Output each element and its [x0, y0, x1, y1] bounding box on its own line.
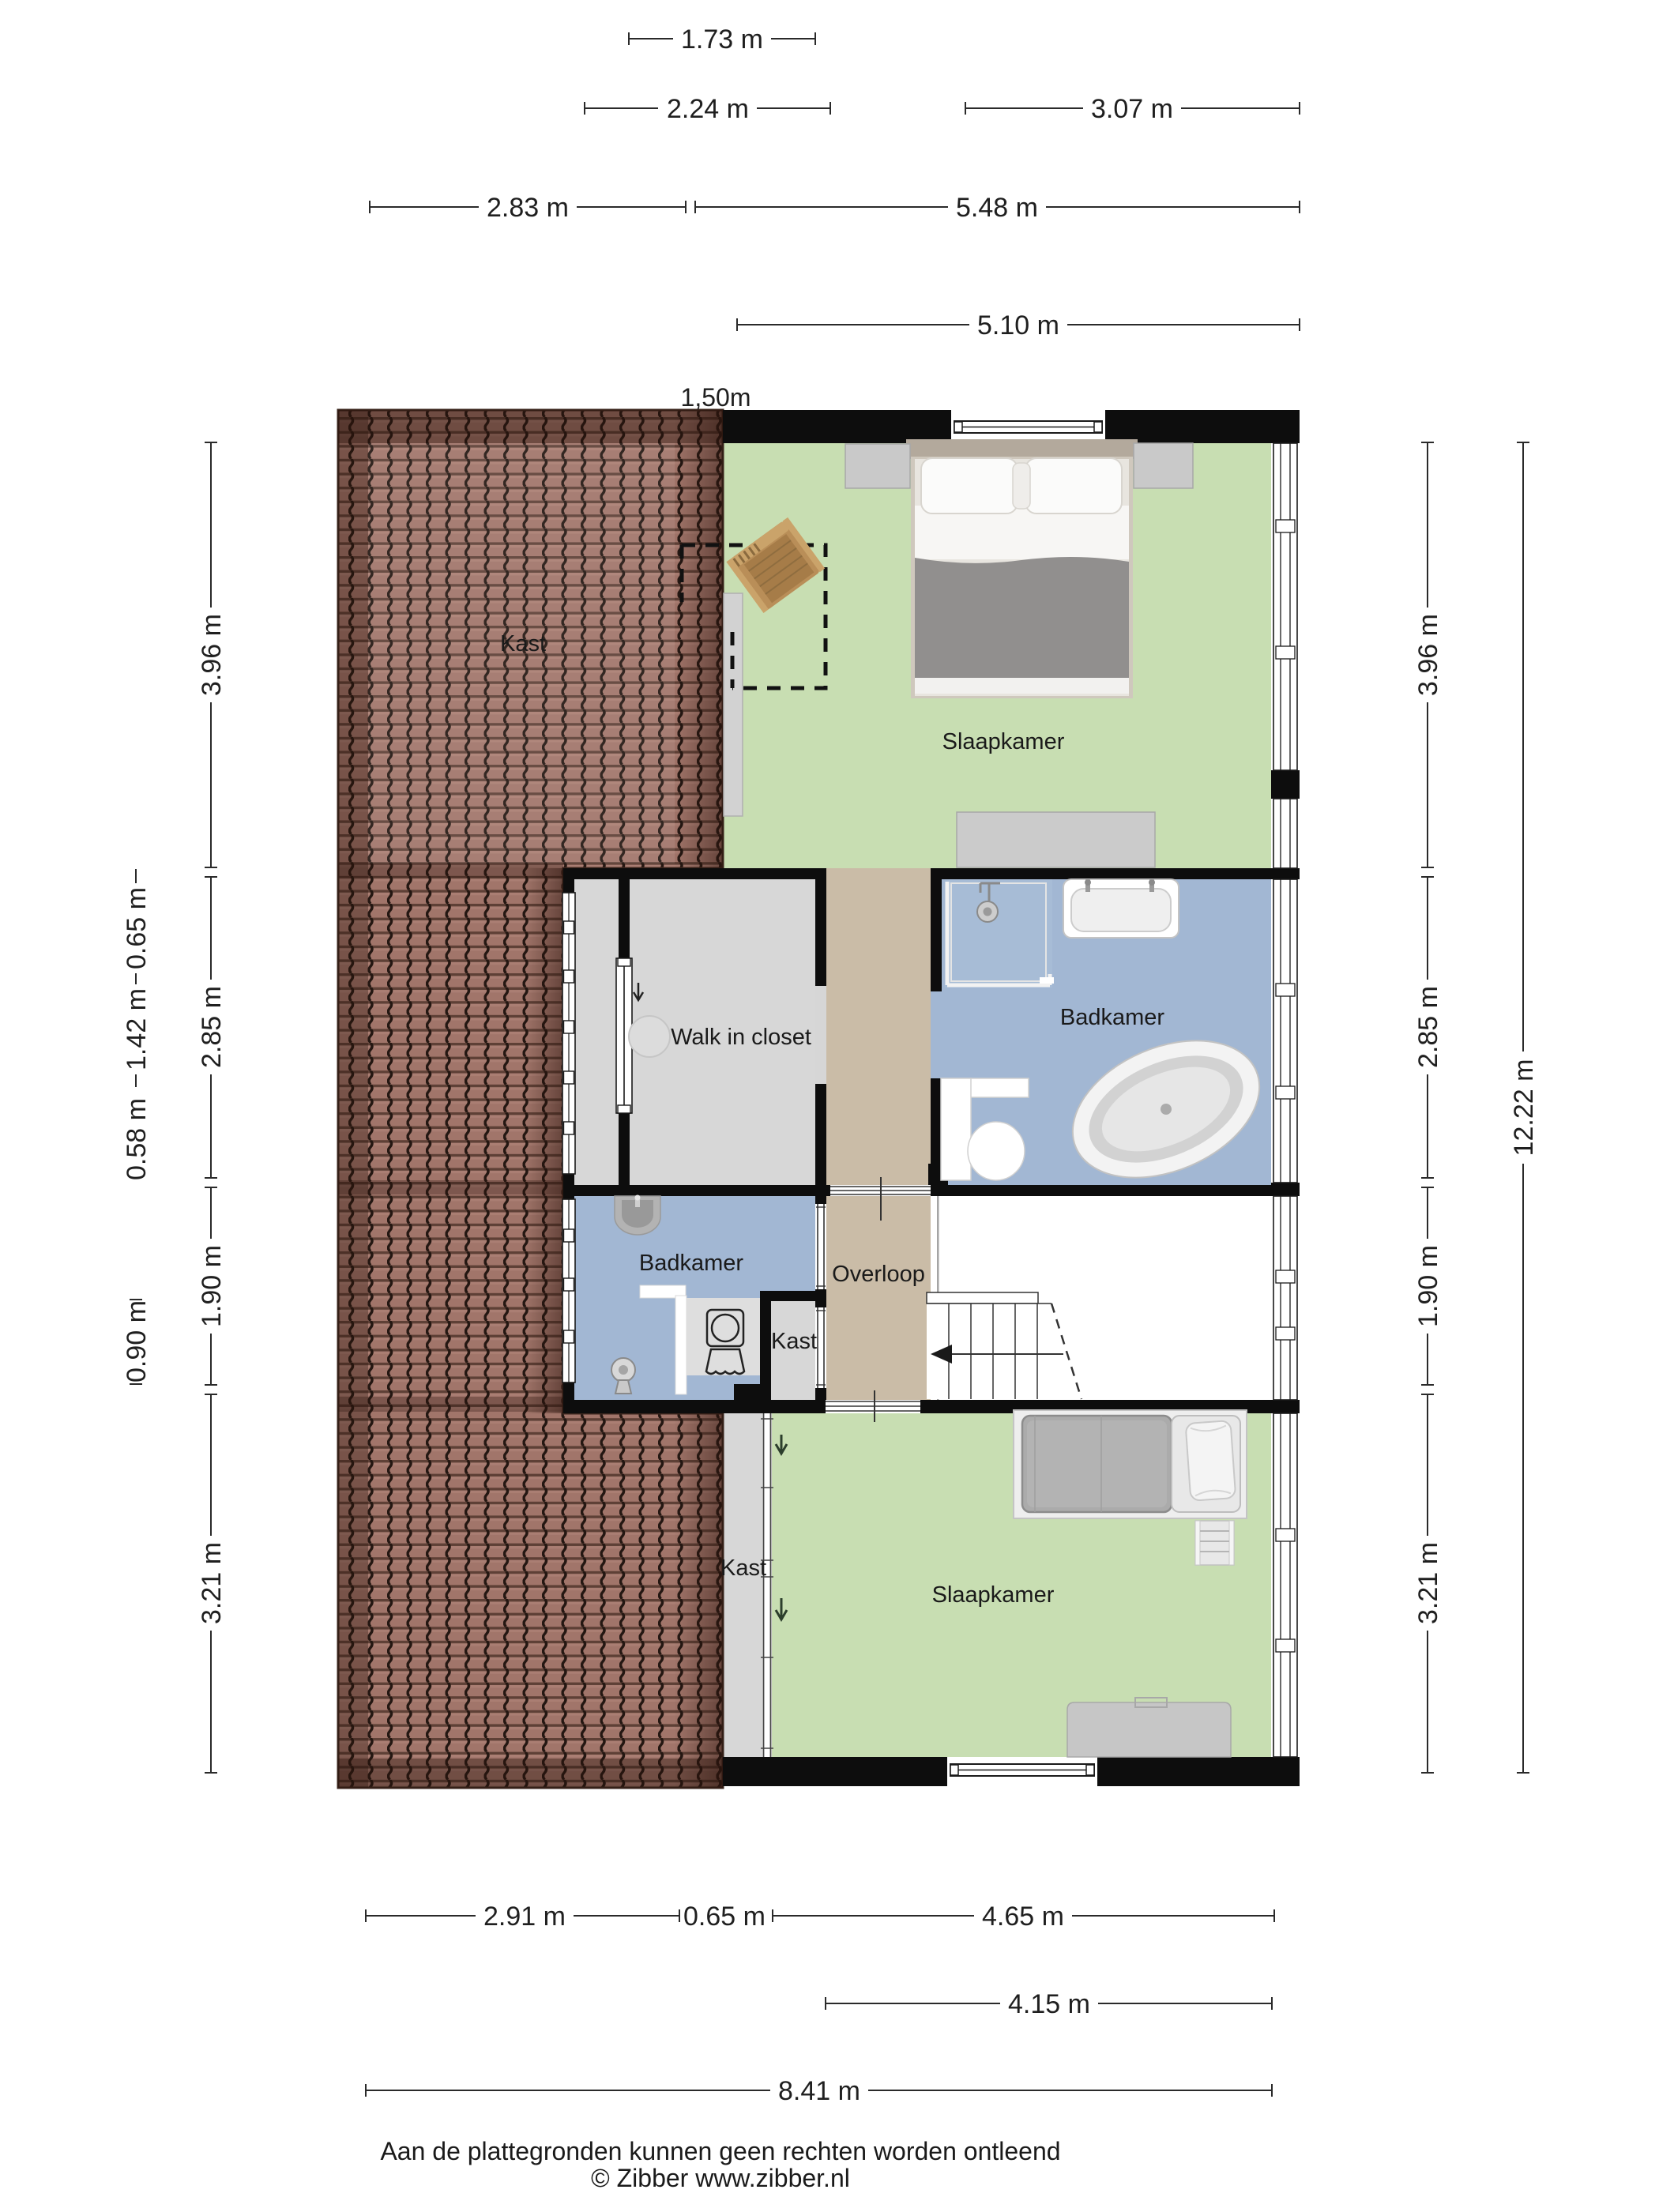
svg-text:1.90 m: 1.90 m — [197, 1245, 227, 1327]
svg-text:3.21 m: 3.21 m — [197, 1542, 227, 1624]
svg-text:0.58 m: 0.58 m — [122, 1098, 152, 1180]
svg-text:Slaapkamer: Slaapkamer — [942, 729, 1065, 754]
svg-text:8.41 m: 8.41 m — [778, 2076, 860, 2106]
svg-text:Badkamer: Badkamer — [639, 1251, 744, 1276]
svg-text:1.90 m: 1.90 m — [1413, 1245, 1443, 1327]
svg-text:© Zibber www.zibber.nl: © Zibber www.zibber.nl — [591, 2164, 850, 2192]
svg-text:2.83 m: 2.83 m — [487, 193, 569, 223]
svg-text:2.91 m: 2.91 m — [483, 1902, 566, 1932]
svg-text:5.10 m: 5.10 m — [977, 310, 1059, 340]
svg-text:Aan de plattegronden kunnen ge: Aan de plattegronden kunnen geen rechten… — [380, 2137, 1060, 2165]
svg-text:Overloop: Overloop — [832, 1262, 925, 1287]
svg-text:3.96 m: 3.96 m — [197, 614, 227, 696]
svg-text:5.48 m: 5.48 m — [956, 193, 1038, 223]
svg-text:Kast: Kast — [500, 631, 546, 656]
svg-text:3.21 m: 3.21 m — [1413, 1542, 1443, 1624]
svg-text:2.85 m: 2.85 m — [1413, 986, 1443, 1068]
svg-text:2.24 m: 2.24 m — [667, 94, 749, 124]
svg-text:4.65 m: 4.65 m — [982, 1902, 1064, 1932]
svg-text:3.07 m: 3.07 m — [1091, 94, 1173, 124]
svg-text:0.65 m: 0.65 m — [122, 887, 152, 969]
svg-text:Kast: Kast — [771, 1329, 817, 1354]
svg-text:Slaapkamer: Slaapkamer — [932, 1582, 1055, 1608]
svg-text:4.15 m: 4.15 m — [1008, 1989, 1090, 2019]
svg-text:0.90 m: 0.90 m — [122, 1300, 152, 1382]
svg-text:Walk in closet: Walk in closet — [671, 1025, 811, 1050]
svg-text:Kast: Kast — [720, 1556, 766, 1581]
svg-text:1.42 m: 1.42 m — [122, 988, 152, 1070]
svg-text:0.65 m: 0.65 m — [683, 1902, 766, 1932]
svg-text:Badkamer: Badkamer — [1060, 1005, 1165, 1030]
svg-text:1.73 m: 1.73 m — [681, 24, 763, 55]
svg-text:2.85 m: 2.85 m — [197, 986, 227, 1068]
svg-text:1,50m: 1,50m — [681, 383, 751, 412]
svg-text:12.22 m: 12.22 m — [1509, 1059, 1539, 1157]
svg-text:3.96 m: 3.96 m — [1413, 614, 1443, 696]
